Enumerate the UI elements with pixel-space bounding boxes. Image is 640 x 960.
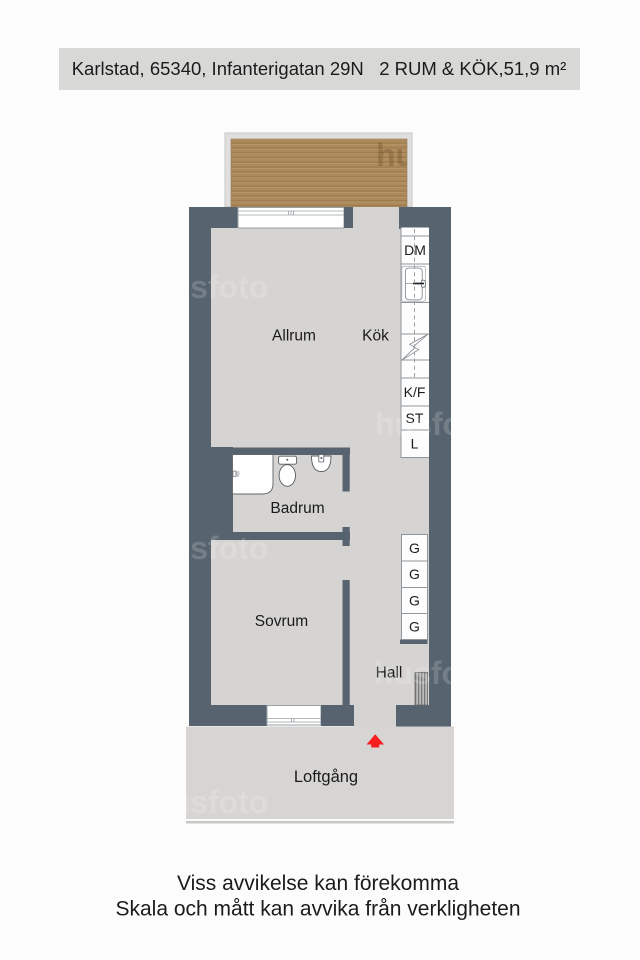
svg-text:Viss avvikelse kan förekomma: Viss avvikelse kan förekomma (177, 872, 459, 895)
svg-text:K/F: K/F (404, 384, 426, 400)
svg-text:husfoto: husfoto (151, 530, 268, 566)
svg-text:Loftgång: Loftgång (294, 768, 358, 786)
svg-text:G: G (409, 566, 420, 582)
svg-text:Karlstad, 65340, Infanterigata: Karlstad, 65340, Infanterigatan 29N 2 RU… (72, 58, 567, 79)
svg-text:husfoto: husfoto (375, 406, 492, 442)
svg-text:G: G (409, 593, 420, 609)
svg-text:husfoto: husfoto (374, 655, 491, 691)
svg-text:husfoto: husfoto (151, 784, 268, 820)
svg-text:Allrum: Allrum (272, 328, 316, 345)
svg-text:G: G (409, 619, 420, 635)
svg-text:husfoto: husfoto (151, 269, 268, 305)
svg-text:Sovrum: Sovrum (255, 613, 308, 630)
svg-text:Kök: Kök (362, 328, 389, 345)
svg-text:G: G (409, 540, 420, 556)
svg-text:Badrum: Badrum (270, 500, 324, 517)
svg-text:Skala och mått kan avvika från: Skala och mått kan avvika från verklighe… (115, 898, 520, 921)
